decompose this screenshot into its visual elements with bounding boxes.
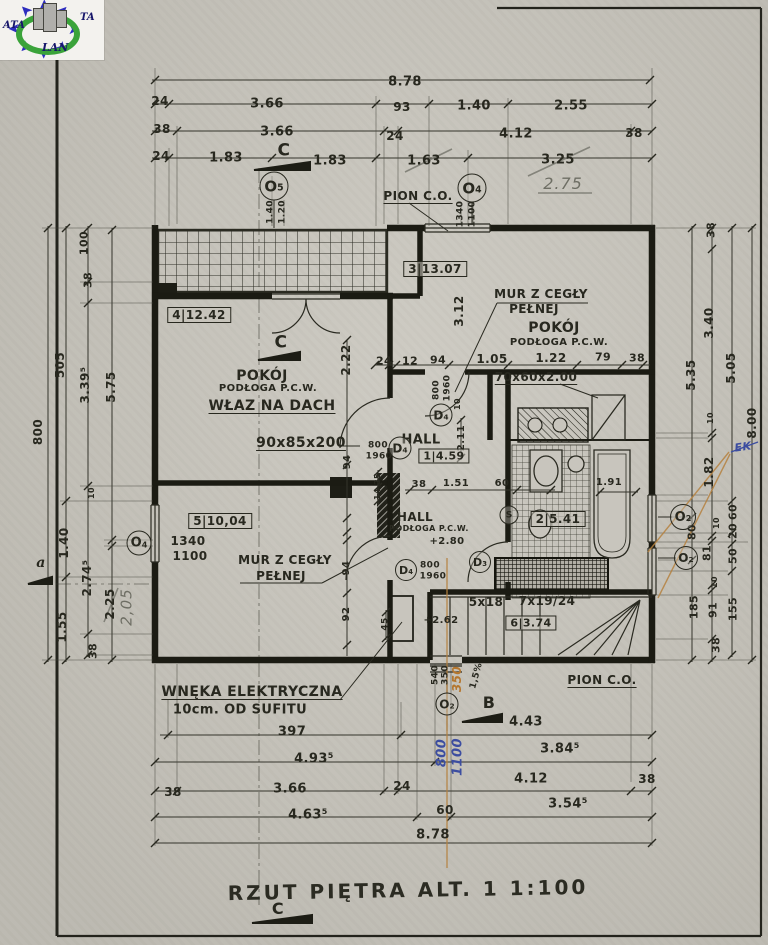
dimension-label: 3.40 [703,307,715,338]
dimension-label: 38 [412,480,427,490]
dimension-label: 20 [728,523,739,539]
section-mark-b: B [483,695,496,711]
dimension-label: 25 [374,473,382,485]
window-size: 1340 [171,535,206,547]
dimension-label: 3.39⁵ [79,367,91,404]
dimension-label: 1.22 [535,352,566,364]
tag-O2: O2 [436,693,459,716]
dimension-label: 1.05 [476,353,507,365]
dimension-label: 91 [708,602,719,618]
roof-hatch-note: WŁAZ NA DACH [209,399,336,413]
window-sill: 1100 [173,550,208,562]
hatch-size: 90x85x200 [256,436,346,450]
room-tag: 6|3.74 [505,616,556,631]
dimension-label: 1.51 [443,479,469,489]
dimension-label: 24 [152,150,170,162]
dimension-label: 5.35 [685,359,697,390]
dimension-label: 2.11 [457,425,467,451]
duct-size: 70x60x2.00 [495,371,578,383]
dimension-label: 1.40 [267,200,276,224]
dimension-label: 1.40 [457,100,491,113]
dimension-label: 10 [711,576,719,588]
dimension-label: 8.00 [746,407,758,438]
dimension-label: 397 [278,726,306,739]
dimension-label: 1960 [366,453,393,462]
dimension-label: 1.20 [279,200,288,224]
dimension-label: 1.91 [596,478,622,488]
handwritten-correction: 350 [451,666,463,692]
tag-D3: D3 [469,551,491,573]
dimension-label: 1.82 [703,456,715,487]
logo-text-lan: LAN [42,41,68,54]
tag-O5: O5 [260,172,289,201]
level-mark: +2.80 [429,537,464,547]
dimension-label: 81 [702,545,713,561]
dimension-label: 800 [420,562,440,571]
dimension-label: 4.93⁵ [294,753,334,766]
dimension-label: 94 [343,455,353,470]
handwritten-note: 800 [436,739,449,767]
dimension-label: 1.40 [58,527,70,558]
floor-note: PODŁOGA P.C.W. [510,338,608,348]
handwritten-note: EK [734,440,752,453]
dimension-label: 2.25 [104,588,116,619]
dimension-label: 94 [342,561,352,576]
niche-note: 10cm. OD SUFITU [173,704,307,717]
axis-mark-a: a [36,556,45,570]
dimension-label: 3.12 [453,295,465,326]
dimension-label: 60 [495,479,510,489]
dimension-label: 12 [402,356,418,367]
handwritten-correction: 2,05 [120,588,135,625]
dimension-label: 3.54⁵ [548,798,588,811]
room-tag: 3|13.07 [403,261,467,277]
niche-note: WNĘKA ELEKTRYCZNA [161,685,342,699]
dimension-label: 800 [32,419,44,445]
tag-D4: D4 [430,404,453,427]
dimension-label: 5.75 [105,371,117,402]
dimension-label: 38 [625,127,643,139]
dimension-label: 1100 [469,201,478,228]
slope-note: 1,5% [469,662,485,690]
wall-note: PEŁNEJ [509,303,559,315]
room-tag: 1|4.59 [418,449,469,464]
dimension-label: 38 [638,773,656,785]
dimension-label: 60 [436,804,454,816]
dimension-label: 38 [88,643,99,659]
dimension-label: 45 [382,617,391,630]
wall-note: MUR Z CEGŁY [494,288,588,300]
dimension-label: 505 [54,352,66,378]
plan-annotations: 8.78243.66931.402.55383.66244.1238241.83… [0,0,768,945]
dimension-label: 4.12 [499,128,533,141]
tag-D4: D4 [395,559,417,581]
dimension-label: 24 [376,356,392,367]
dimension-label: 1.83 [313,155,347,168]
dimension-label: 38 [629,353,645,364]
dimension-label: 540 [432,665,441,685]
logo-building-icon [43,3,57,32]
dimension-label: 38 [83,272,94,288]
stair-note: 5x18 [469,596,503,608]
dimension-label: 10 [88,487,96,499]
dimension-label: 800 [433,380,442,400]
logo-arrow-icon: ➤ [21,6,30,15]
dimension-label: 4.43 [509,716,543,729]
dimension-label: 155 [728,597,739,621]
tag-S: S [500,506,519,525]
dimension-label: 92 [342,607,352,622]
dimension-label: 3.25 [541,154,575,167]
dimension-label: 24 [393,780,411,792]
logo-building-icon [56,10,67,28]
dimension-label: 3.66 [273,783,307,796]
level-mark: +2.62 [423,616,458,626]
logo-text-ta: TA [80,12,95,23]
dimension-label: 2.55 [554,100,588,113]
dimension-label: 79 [595,352,611,363]
riser-label: PION C.O. [567,674,636,686]
dimension-label: 4.12 [514,773,548,786]
dimension-label: 185 [689,595,700,619]
room-tag: 4|12.42 [167,307,231,323]
floor-note: PODŁOGA P.C.W. [219,384,317,394]
dimension-label: 8.78 [416,829,450,842]
room-tag: 5|10,04 [188,513,252,529]
dimension-label: 100 [79,231,90,255]
dimension-label: 93 [393,101,411,113]
dimension-label: 24 [386,130,404,142]
dimension-label: 3.84⁵ [540,743,580,756]
room-tag: 2|5.41 [531,511,586,527]
atalan-watermark-logo: ➤ ➤ ➤ ➤ ➤ ➤ ➤ ➤ ATA TA LAN [0,0,104,60]
dimension-label: 5.05 [725,352,737,383]
floor-note: PODŁOGA P.C.W. [389,525,469,533]
tag-O2: O2 [670,504,696,530]
wall-note: MUR Z CEGŁY [238,554,332,566]
dimension-label: 2.22 [340,344,352,375]
dimension-label: 94 [430,355,446,366]
riser-label: PION C.O. [383,190,452,202]
dimension-label: 24 [151,95,169,107]
dimension-label: 800 [368,442,388,451]
dimension-label: 1.63 [407,155,441,168]
dimension-label: 50 [728,548,739,564]
dimension-label: 38 [153,123,171,135]
dimension-label: 14 [374,488,382,500]
dimension-label: 1.55 [56,611,68,642]
dimension-label: 1960 [444,375,453,402]
dimension-label: 3.66 [260,126,294,139]
room-name: POKÓJ [528,321,580,335]
dimension-label: 10 [707,412,715,424]
stair-note: 7x19/24 [519,595,576,607]
dimension-label: 10 [713,517,721,529]
wall-note: PEŁNEJ [256,570,306,582]
dimension-label: 10 [454,398,462,410]
dimension-label: 2.74⁵ [81,560,93,597]
tag-O4: O4 [127,531,152,556]
scanned-floor-plan-page: 8.78243.66931.402.55383.66244.1238241.83… [0,0,768,945]
tag-O4: O4 [458,174,487,203]
handwritten-correction: 2.75 [543,176,583,192]
dimension-label: 38 [164,786,182,798]
dimension-label: 1960 [420,573,447,582]
tag-D4: D4 [389,437,412,460]
dimension-label: 38 [706,222,717,238]
dimension-label: 1.83 [209,152,243,165]
room-name: HALL [397,511,433,523]
logo-text-ata: ATA [3,20,25,31]
dimension-label: 38 [711,637,722,653]
handwritten-note: 1100 [452,738,465,776]
dimension-label: 1340 [457,201,466,228]
dimension-label: 3.66 [250,98,284,111]
tag-O2: O2 [674,546,698,570]
dimension-label: 4.63⁵ [288,809,328,822]
section-mark-c: C [275,335,288,352]
dimension-label: 60 [728,504,739,520]
section-mark-c-top: C [278,143,291,160]
room-name: POKÓJ [236,369,288,383]
dimension-label: 8.78 [388,76,422,89]
